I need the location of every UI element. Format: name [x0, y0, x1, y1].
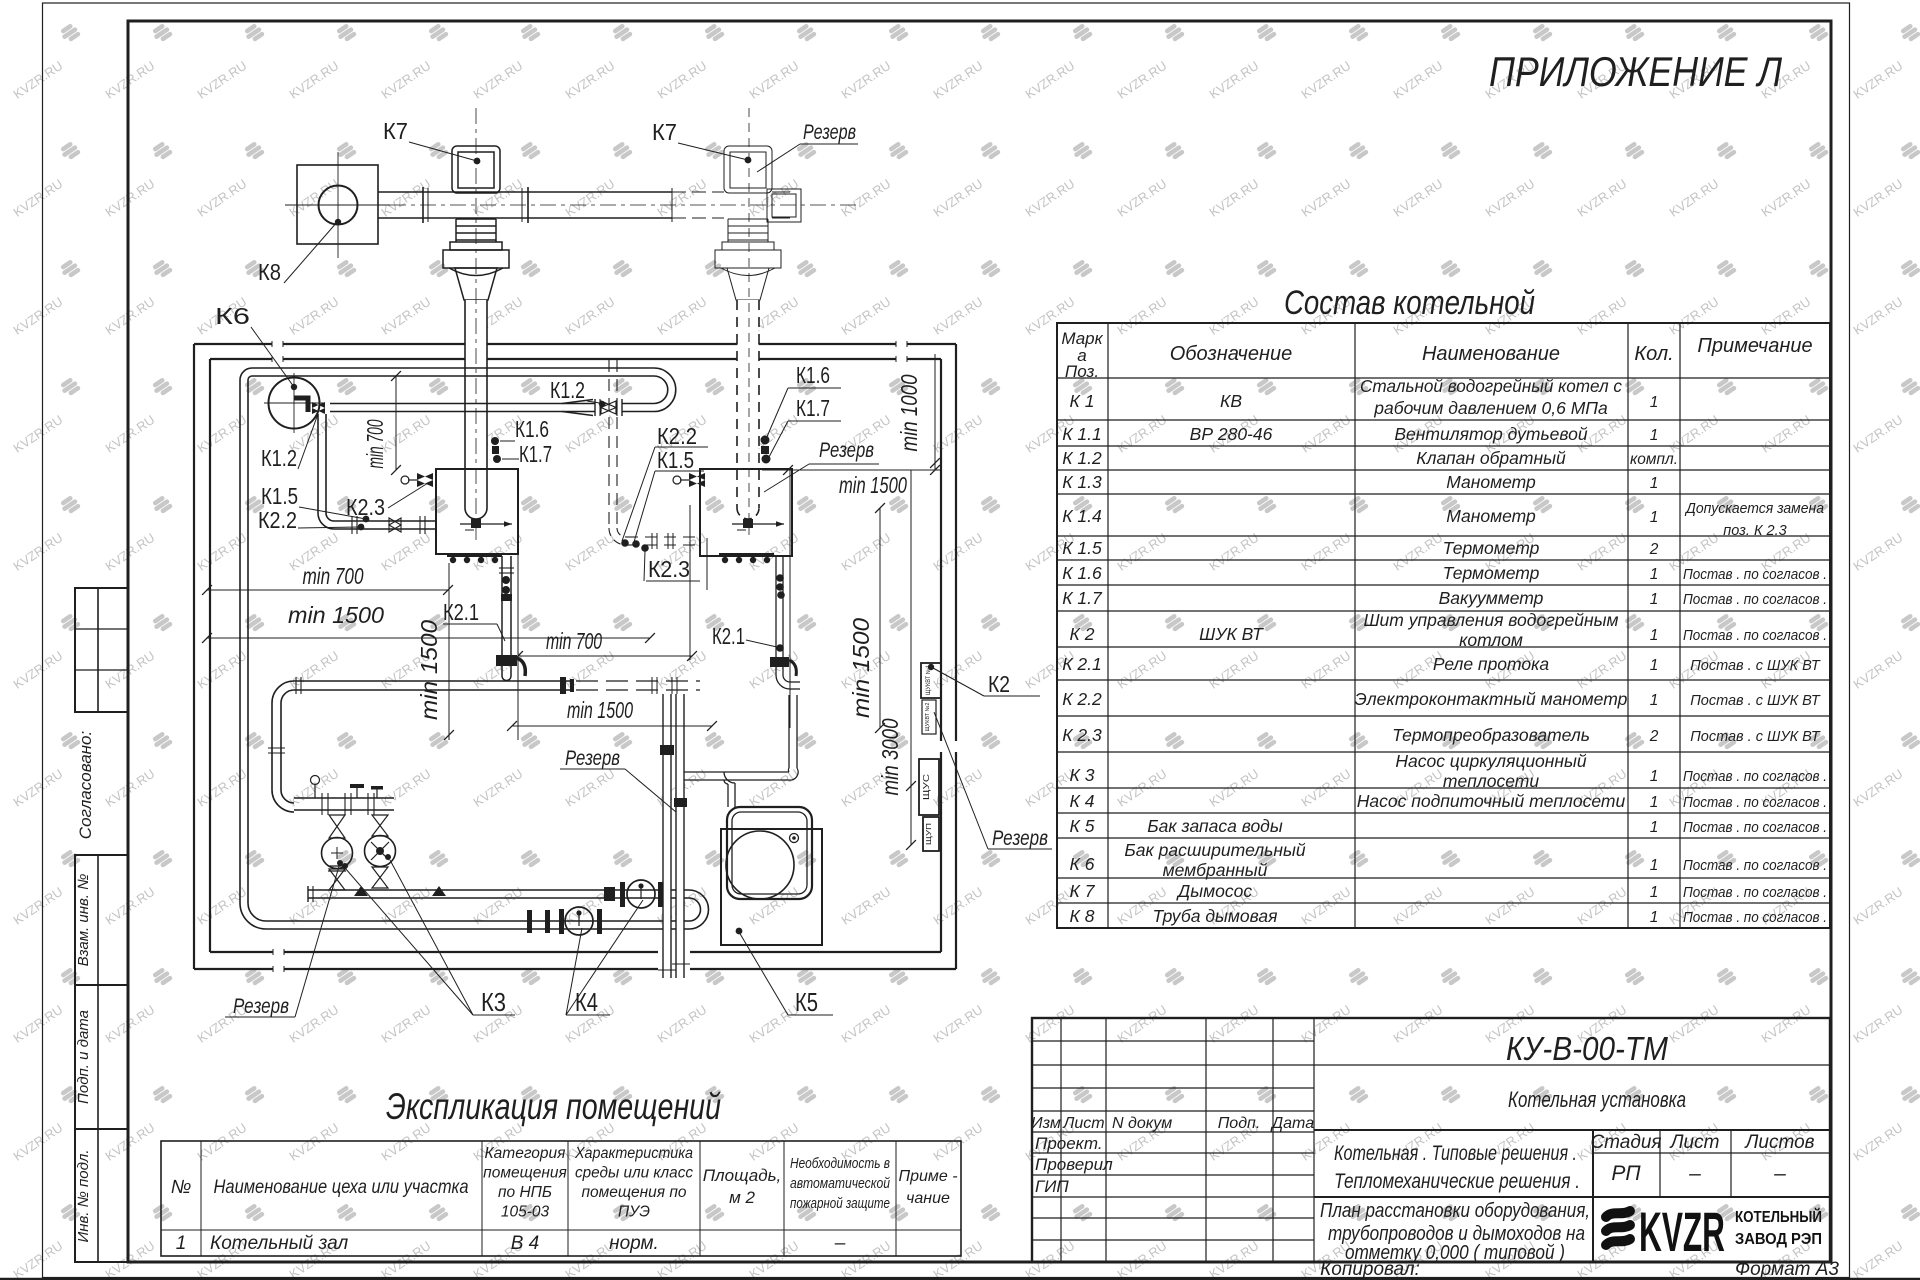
svg-text:2: 2: [1649, 541, 1659, 558]
svg-text:–: –: [1688, 1162, 1701, 1185]
svg-text:Характеристика: Характеристика: [574, 1145, 693, 1162]
svg-text:Манометр: Манометр: [1446, 506, 1536, 526]
svg-text:min 1500: min 1500: [288, 602, 384, 628]
svg-text:Вакуумметр: Вакуумметр: [1439, 588, 1544, 608]
svg-text:К1.6: К1.6: [515, 416, 549, 442]
svg-text:Подп.: Подп.: [1218, 1115, 1261, 1132]
svg-text:Проверил: Проверил: [1035, 1155, 1113, 1174]
svg-text:К1.2: К1.2: [261, 445, 297, 471]
svg-text:План расстановки оборудования,: План расстановки оборудования,: [1320, 1200, 1590, 1222]
svg-text:Подп. и дата: Подп. и дата: [75, 1010, 92, 1104]
svg-text:Постав . по согласов .: Постав . по согласов .: [1683, 858, 1827, 874]
svg-text:Термопреобразователь: Термопреобразователь: [1392, 725, 1590, 745]
svg-text:К 1.3: К 1.3: [1062, 472, 1102, 492]
svg-text:РП: РП: [1611, 1162, 1641, 1185]
svg-text:отметку 0,000 ( типовой ): отметку 0,000 ( типовой ): [1345, 1242, 1565, 1264]
svg-text:К2.2: К2.2: [657, 423, 697, 449]
svg-text:К 8: К 8: [1070, 906, 1095, 926]
svg-text:котлом: котлом: [1459, 630, 1523, 650]
svg-text:по НПБ: по НПБ: [498, 1184, 552, 1201]
svg-text:К1.6: К1.6: [796, 362, 830, 388]
svg-text:Лист: Лист: [1062, 1115, 1104, 1132]
svg-text:Листов: Листов: [1743, 1132, 1814, 1153]
svg-text:мембранный: мембранный: [1163, 860, 1268, 880]
svg-text:К2.3: К2.3: [648, 556, 690, 582]
svg-text:Инв. № подл.: Инв. № подл.: [75, 1149, 92, 1242]
svg-text:Манометр: Манометр: [1446, 472, 1536, 492]
svg-text:min 1500: min 1500: [839, 472, 907, 498]
svg-text:–: –: [834, 1233, 846, 1254]
svg-text:min 1000: min 1000: [896, 374, 922, 451]
svg-text:К 2: К 2: [1070, 624, 1095, 644]
svg-text:min 700: min 700: [546, 628, 602, 654]
svg-text:К1.2: К1.2: [550, 377, 585, 403]
svg-text:1: 1: [1650, 475, 1659, 492]
svg-text:Труба дымовая: Труба дымовая: [1153, 906, 1278, 926]
svg-text:К 2.3: К 2.3: [1062, 725, 1102, 745]
svg-text:1: 1: [1650, 909, 1659, 926]
svg-text:Примечание: Примечание: [1697, 335, 1812, 357]
svg-text:min 3000: min 3000: [877, 718, 903, 795]
svg-text:Проект.: Проект.: [1035, 1134, 1103, 1153]
svg-text:Приме -: Приме -: [898, 1168, 957, 1185]
svg-text:Термометр: Термометр: [1443, 538, 1540, 558]
svg-text:В 4: В 4: [511, 1233, 540, 1254]
svg-text:Взам. инв. №: Взам. инв. №: [75, 874, 92, 967]
svg-text:ЗАВОД РЭП: ЗАВОД РЭП: [1735, 1231, 1822, 1248]
svg-text:К 2.1: К 2.1: [1062, 654, 1102, 674]
svg-text:Клапан обратный: Клапан обратный: [1416, 448, 1566, 468]
svg-text:Резерв: Резерв: [803, 121, 856, 144]
svg-text:Котельная . Типовые решения .: Котельная . Типовые решения .: [1334, 1142, 1577, 1165]
svg-text:помещения: помещения: [483, 1165, 567, 1182]
svg-text:2: 2: [1649, 728, 1659, 745]
svg-text:К1.5: К1.5: [261, 483, 298, 509]
svg-text:К 7: К 7: [1070, 881, 1096, 901]
svg-text:Постав . с ШУК ВТ: Постав . с ШУК ВТ: [1690, 729, 1821, 745]
svg-text:Электроконтактный манометр: Электроконтактный манометр: [1355, 689, 1628, 709]
svg-text:Реле протока: Реле протока: [1433, 654, 1550, 674]
svg-text:Тепломеханические решения .: Тепломеханические решения .: [1334, 1170, 1580, 1193]
svg-text:К2.1: К2.1: [712, 623, 745, 649]
svg-text:ПРИЛОЖЕНИЕ Л: ПРИЛОЖЕНИЕ Л: [1489, 48, 1782, 95]
svg-text:КУ-В-00-ТМ: КУ-В-00-ТМ: [1506, 1030, 1668, 1067]
svg-text:Бак запаса воды: Бак запаса воды: [1147, 816, 1283, 836]
svg-text:min 1500: min 1500: [848, 618, 874, 718]
svg-text:Насос подпиточный теплосети: Насос подпиточный теплосети: [1357, 791, 1626, 811]
svg-text:–: –: [1773, 1162, 1786, 1185]
svg-text:ПУЭ: ПУЭ: [618, 1204, 650, 1221]
svg-text:автоматической: автоматической: [790, 1175, 891, 1192]
svg-text:К2.1: К2.1: [443, 599, 479, 625]
svg-text:К 6: К 6: [1070, 854, 1095, 874]
svg-text:Бак расширительный: Бак расширительный: [1124, 840, 1305, 860]
svg-text:К7: К7: [383, 118, 408, 144]
svg-text:1: 1: [1650, 768, 1659, 785]
svg-text:Резерв: Резерв: [819, 439, 874, 462]
svg-text:ШУК ВТ: ШУК ВТ: [1199, 624, 1264, 644]
svg-text:1: 1: [1650, 857, 1659, 874]
svg-text:Обозначение: Обозначение: [1170, 343, 1293, 365]
svg-text:К3: К3: [481, 987, 506, 1017]
svg-text:1: 1: [1650, 794, 1659, 811]
svg-text:Наименование цеха или участка: Наименование цеха или участка: [214, 1177, 469, 1198]
svg-text:Дата: Дата: [1270, 1115, 1314, 1132]
svg-text:Резерв: Резерв: [233, 995, 289, 1018]
svg-text:Резерв: Резерв: [992, 827, 1048, 850]
svg-text:Термометр: Термометр: [1443, 563, 1540, 583]
svg-text:1: 1: [1650, 591, 1659, 608]
svg-text:Постав . с ШУК ВТ: Постав . с ШУК ВТ: [1690, 693, 1821, 709]
svg-text:Постав . по согласов .: Постав . по согласов .: [1683, 910, 1827, 926]
svg-text:№: №: [171, 1177, 192, 1198]
svg-text:норм.: норм.: [609, 1233, 659, 1254]
svg-text:теплосети: теплосети: [1443, 771, 1539, 791]
svg-text:К 1.4: К 1.4: [1062, 506, 1102, 526]
svg-text:105-03: 105-03: [501, 1204, 550, 1221]
svg-text:К 1.5: К 1.5: [1062, 538, 1102, 558]
svg-text:Состав котельной: Состав котельной: [1284, 284, 1535, 322]
svg-text:Постав . по согласов .: Постав . по согласов .: [1683, 592, 1827, 608]
svg-text:min 1500: min 1500: [567, 697, 633, 723]
svg-text:Экспликация помещений: Экспликация помещений: [386, 1086, 721, 1127]
svg-text:К2.2: К2.2: [258, 507, 297, 533]
svg-text:К2.3: К2.3: [346, 494, 385, 520]
svg-text:Стадия: Стадия: [1590, 1132, 1661, 1153]
svg-text:Необходимость в: Необходимость в: [790, 1155, 890, 1172]
svg-text:N докум: N докум: [1112, 1115, 1172, 1132]
svg-text:Категория: Категория: [485, 1145, 566, 1162]
svg-text:1: 1: [1650, 884, 1659, 901]
svg-text:среды или класс: среды или класс: [575, 1165, 693, 1182]
svg-text:Дымосос: Дымосос: [1176, 881, 1252, 901]
svg-text:1: 1: [1650, 819, 1659, 836]
svg-text:К 1.7: К 1.7: [1062, 588, 1103, 608]
svg-text:К1.7: К1.7: [796, 395, 830, 421]
svg-text:компл.: компл.: [1630, 451, 1678, 468]
svg-text:помещения по: помещения по: [581, 1184, 686, 1201]
svg-text:Допускается замена: Допускается замена: [1684, 501, 1824, 517]
svg-text:1: 1: [1650, 427, 1659, 444]
svg-text:поз. К 2.3: поз. К 2.3: [1723, 523, 1786, 539]
svg-text:Поз.: Поз.: [1065, 362, 1099, 381]
svg-text:К 5: К 5: [1070, 816, 1095, 836]
svg-text:1: 1: [1650, 692, 1659, 709]
svg-text:1: 1: [1650, 509, 1659, 526]
svg-text:Постав . по согласов .: Постав . по согласов .: [1683, 820, 1827, 836]
svg-text:Изм: Изм: [1031, 1115, 1061, 1132]
svg-text:Постав . с ШУК ВТ: Постав . с ШУК ВТ: [1690, 658, 1821, 674]
svg-text:KVZR: KVZR: [1639, 1200, 1725, 1263]
svg-text:1: 1: [1650, 627, 1659, 644]
svg-text:КОТЕЛЬНЫЙ: КОТЕЛЬНЫЙ: [1735, 1207, 1822, 1226]
svg-text:min 700: min 700: [303, 563, 364, 589]
svg-text:Вентилятор дутьевой: Вентилятор дутьевой: [1394, 424, 1587, 444]
svg-text:К 1.2: К 1.2: [1062, 448, 1102, 468]
svg-text:Стальной водогрейный котел с: Стальной водогрейный котел с: [1360, 376, 1622, 396]
svg-text:Насос циркуляционный: Насос циркуляционный: [1395, 751, 1587, 771]
svg-text:Площадь,: Площадь,: [703, 1166, 782, 1185]
svg-text:Лист: Лист: [1669, 1132, 1720, 1153]
svg-text:1: 1: [1650, 394, 1659, 411]
svg-text:Постав . по согласов .: Постав . по согласов .: [1683, 628, 1827, 644]
svg-text:Котельная установка: Котельная установка: [1508, 1087, 1686, 1112]
svg-text:К 4: К 4: [1070, 791, 1095, 811]
svg-text:К5: К5: [795, 987, 818, 1017]
svg-text:ЩУС: ЩУС: [922, 774, 931, 800]
svg-text:К7: К7: [652, 119, 677, 145]
svg-text:пожарной защите: пожарной защите: [790, 1195, 890, 1212]
svg-text:min 1500: min 1500: [416, 620, 442, 720]
svg-text:Котельный зал: Котельный зал: [210, 1233, 348, 1254]
svg-text:Постав . по согласов .: Постав . по согласов .: [1683, 885, 1827, 901]
svg-text:1: 1: [176, 1233, 187, 1254]
svg-text:КВ: КВ: [1220, 391, 1242, 411]
svg-text:Постав . по согласов .: Постав . по согласов .: [1683, 567, 1827, 583]
svg-text:min 700: min 700: [362, 419, 388, 468]
svg-text:1: 1: [1650, 566, 1659, 583]
svg-text:К6: К6: [215, 303, 250, 329]
svg-text:К1.7: К1.7: [519, 441, 552, 467]
svg-text:К4: К4: [575, 987, 598, 1017]
svg-text:Резерв: Резерв: [565, 747, 620, 770]
svg-text:К 1.1: К 1.1: [1062, 424, 1102, 444]
svg-text:рабочим давлением 0,6 МПа: рабочим давлением 0,6 МПа: [1373, 398, 1608, 418]
svg-text:Кол.: Кол.: [1634, 343, 1673, 365]
svg-text:Шит управления водогрейным: Шит управления водогрейным: [1363, 610, 1618, 630]
svg-text:Постав . по согласов .: Постав . по согласов .: [1683, 769, 1827, 785]
svg-text:К8: К8: [258, 259, 281, 285]
svg-text:чание: чание: [906, 1190, 950, 1207]
svg-text:ЩУКВТ №2: ЩУКВТ №2: [925, 703, 931, 732]
svg-text:Наименование: Наименование: [1422, 343, 1560, 365]
svg-text:ГИП: ГИП: [1035, 1177, 1069, 1196]
svg-text:Согласовано:: Согласовано:: [76, 731, 95, 840]
svg-text:м 2: м 2: [729, 1188, 755, 1207]
svg-text:К 1.6: К 1.6: [1062, 563, 1102, 583]
svg-text:К2: К2: [988, 671, 1010, 697]
svg-text:К 1: К 1: [1070, 391, 1095, 411]
svg-text:Постав . по согласов .: Постав . по согласов .: [1683, 795, 1827, 811]
svg-text:ЩУП: ЩУП: [926, 823, 933, 845]
svg-text:К 2.2: К 2.2: [1062, 689, 1102, 709]
svg-text:ВР 280-46: ВР 280-46: [1190, 424, 1273, 444]
svg-text:К1.5: К1.5: [657, 447, 694, 473]
svg-text:1: 1: [1650, 657, 1659, 674]
svg-text:К 3: К 3: [1070, 765, 1095, 785]
